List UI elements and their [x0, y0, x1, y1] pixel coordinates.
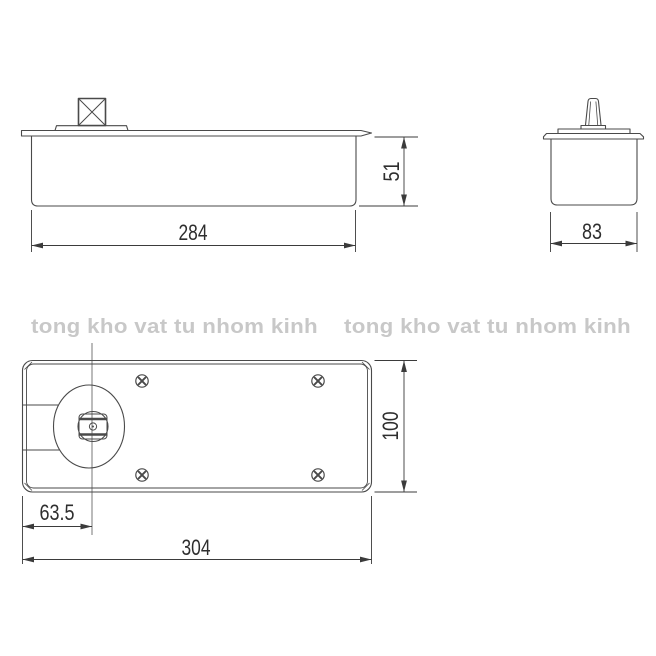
arrow-right-icon [344, 243, 356, 249]
arrow-up-icon [401, 137, 407, 149]
end-body-outline [551, 139, 637, 205]
arrow-left-icon [32, 243, 44, 249]
screw-icon [136, 375, 148, 387]
end-raised-plate [558, 129, 630, 134]
plan-view [23, 343, 372, 535]
spindle-base [581, 126, 606, 129]
technical-drawing-canvas: tong kho vat tu nhom kinh tong kho vat t… [0, 0, 656, 656]
arrow-up-icon [401, 361, 407, 373]
dimensions: 284 51 83 100 63.5 304 [23, 137, 638, 564]
front-raised-plate [55, 126, 128, 131]
spindle-cross-lines [79, 99, 106, 126]
watermark: tong kho vat tu nhom kinh tong kho vat t… [31, 315, 631, 338]
spindle-taper-icon [586, 99, 602, 126]
dim-end-width-label: 83 [582, 219, 602, 244]
watermark-text-1: tong kho vat tu nhom kinh [31, 315, 318, 338]
arrow-down-icon [401, 195, 407, 207]
arrow-left-icon [23, 557, 35, 563]
spindle-inner-lines [589, 102, 598, 126]
arrow-right-icon [360, 557, 372, 563]
end-cover-plate [544, 134, 644, 140]
arrow-down-icon [401, 481, 407, 493]
watermark-text-2: tong kho vat tu nhom kinh [344, 315, 631, 338]
dim-spindle-offset-label: 63.5 [40, 500, 75, 525]
dim-plan-width-label: 304 [182, 535, 211, 560]
front-cover-plate [22, 131, 372, 137]
arrow-right-icon [626, 241, 638, 247]
dim-plan-height-label: 100 [378, 412, 403, 441]
dim-front-width-label: 284 [179, 220, 208, 245]
arrow-left-icon [551, 241, 563, 247]
end-view [544, 99, 644, 206]
screw-icon [312, 375, 324, 387]
drawing-svg: tong kho vat tu nhom kinh tong kho vat t… [0, 0, 656, 656]
left-notch-lines [23, 405, 60, 450]
arrow-right-icon [81, 524, 93, 530]
screw-icon [312, 469, 324, 481]
screw-icon [136, 469, 148, 481]
arrow-left-icon [23, 524, 35, 530]
dim-front-height-label: 51 [379, 162, 404, 182]
front-body-outline [32, 136, 357, 206]
front-view [22, 99, 372, 207]
